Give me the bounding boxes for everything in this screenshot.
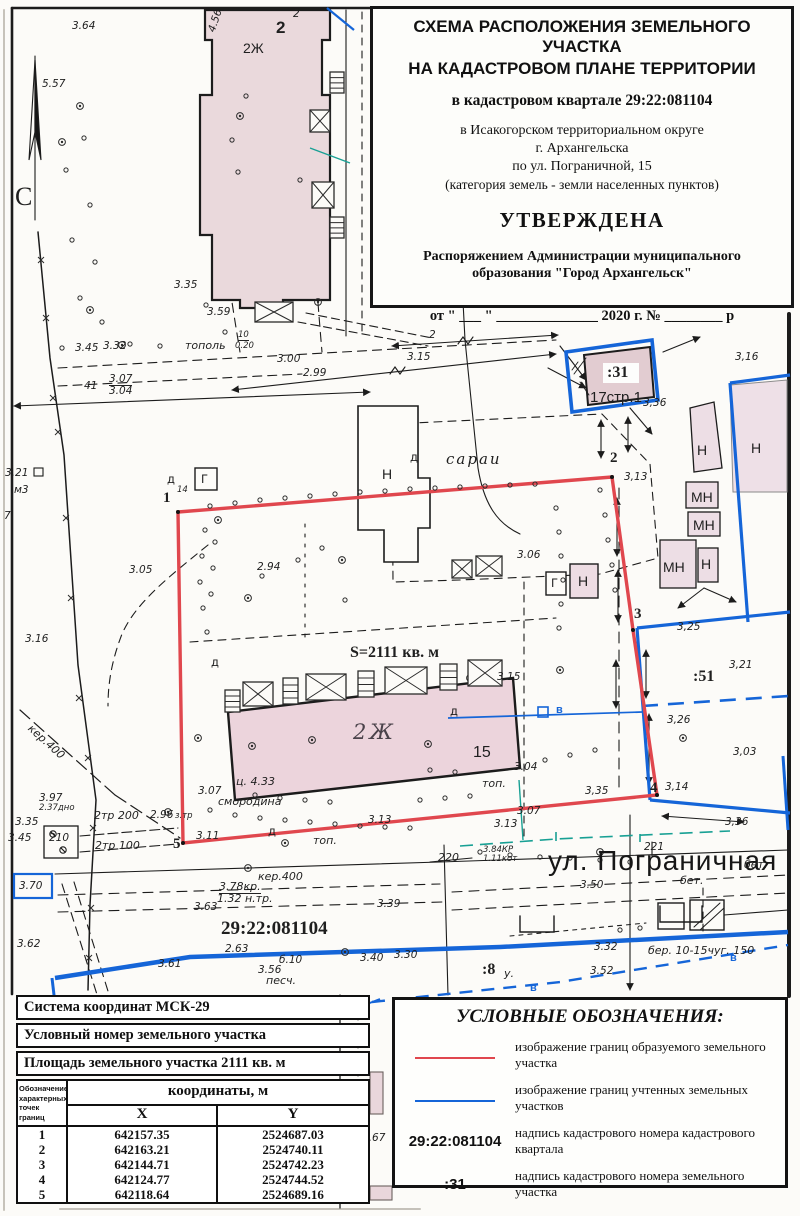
map-label: 1.11кот xyxy=(483,854,517,864)
map-label: д xyxy=(167,472,175,486)
map-label: 3.40 xyxy=(360,952,383,964)
blue-line-symbol xyxy=(415,1100,495,1102)
table-row: 5 xyxy=(18,1187,68,1202)
map-label: 3.52 xyxy=(590,965,613,977)
table-row: 2 xyxy=(18,1142,68,1157)
map-label: :31 xyxy=(607,364,628,382)
map-label: 3,13 xyxy=(624,471,647,483)
parcel-info-table: Система координат МСК-29 Условный номер … xyxy=(16,995,370,1204)
map-label: 220 xyxy=(438,851,459,864)
parcel-area: Площадь земельного участка 2111 кв. м xyxy=(16,1051,370,1076)
map-label: 3,16 xyxy=(735,351,758,363)
map-label: 3.32 xyxy=(103,340,126,352)
map-label: 3,35 xyxy=(585,785,608,797)
map-label: 3,03 xyxy=(733,746,756,758)
map-label: 3.11 xyxy=(196,830,219,842)
table-row: 3 xyxy=(18,1157,68,1172)
map-label: 29:22:081104 xyxy=(221,918,328,940)
map-label: 2 xyxy=(429,329,436,341)
map-label: 3.06 xyxy=(517,549,540,561)
map-label: МН xyxy=(693,517,715,533)
map-label: 10 xyxy=(238,330,249,341)
map-label: 2Ж xyxy=(353,720,396,744)
map-label: б.10 xyxy=(279,954,302,966)
map-label: 2 xyxy=(610,450,618,467)
map-label: топ. xyxy=(313,834,337,847)
map-label: топ. xyxy=(482,777,506,790)
map-label: 5.57 xyxy=(42,78,65,90)
map-label: 3.15 xyxy=(407,351,430,363)
map-label: 3.39 xyxy=(377,898,400,910)
approved-stamp: УТВЕРЖДЕНА xyxy=(373,208,791,233)
scheme-title-line2: НА КАДАСТРОВОМ ПЛАНЕ ТЕРРИТОРИИ xyxy=(373,59,791,79)
map-label: :51 xyxy=(693,668,714,686)
map-label: Г xyxy=(201,472,208,486)
map-label: 3.64 xyxy=(72,20,95,32)
address: по ул. Пограничной, 15 xyxy=(373,159,791,175)
map-label: 3 xyxy=(634,606,642,623)
quarter-number-symbol: 29:22:081104 xyxy=(399,1133,511,1150)
map-label: 1 xyxy=(163,490,171,507)
map-label: 3.04 xyxy=(109,385,132,397)
table-row: 4 xyxy=(18,1172,68,1187)
map-label: 2.96 xyxy=(150,809,173,821)
legend-item-new-boundary: изображение границ образуемого земельног… xyxy=(399,1039,777,1071)
map-label: кер.400 xyxy=(258,870,303,883)
city: г. Архангельска xyxy=(373,141,791,157)
table-row: 1 xyxy=(18,1127,68,1142)
map-label: 41 xyxy=(84,380,97,392)
map-label: бет. xyxy=(680,874,703,887)
map-label: песч. xyxy=(266,974,296,987)
map-label: 2.99 xyxy=(303,367,326,379)
coordinates-table: Обозначение характерных точек границ коо… xyxy=(16,1079,370,1204)
map-label: 5 xyxy=(173,836,181,853)
legend-item-parcel-number: :31 надпись кадастрового номера земельно… xyxy=(399,1168,777,1200)
land-category: (категория земель - земли населенных пун… xyxy=(373,177,791,193)
map-label: 3.61 xyxy=(158,958,181,970)
points-header: Обозначение характерных точек границ xyxy=(18,1081,68,1127)
map-label: 3.63 xyxy=(194,901,217,913)
map-label: 221 xyxy=(644,841,664,853)
map-label: 2.63 xyxy=(225,943,248,955)
map-label: 3.13 xyxy=(368,814,391,826)
map-label: 3.04 xyxy=(514,761,537,773)
map-label: д xyxy=(211,655,219,669)
map-label: 3.16 xyxy=(25,633,48,645)
map-label: 3.59 xyxy=(207,306,230,318)
map-label: 2тр 200 xyxy=(94,809,139,822)
map-label: 0.20 xyxy=(235,341,254,351)
map-label: 3,26 xyxy=(667,714,690,726)
map-label: 3.13 xyxy=(494,818,517,830)
map-label: в xyxy=(530,982,537,994)
map-label: м3 xyxy=(14,484,29,496)
coord-system: Система координат МСК-29 xyxy=(16,995,370,1020)
map-label: 3.35 xyxy=(15,816,38,828)
map-label: ц. 4.33 xyxy=(236,775,275,788)
map-label: д xyxy=(450,704,458,718)
map-label: смородина xyxy=(218,795,281,808)
legend-item-quarter-number: 29:22:081104 надпись кадастрового номера… xyxy=(399,1125,777,1157)
map-label: бер. 10-15чуг. 150 xyxy=(648,944,754,957)
map-label: 3.70 xyxy=(19,880,42,892)
map-label: 3,36 xyxy=(643,397,666,409)
map-label: д xyxy=(268,824,276,838)
conditional-number: Условный номер земельного участка xyxy=(16,1023,370,1048)
map-label: 210 xyxy=(49,832,69,844)
map-label: 3,25 xyxy=(677,621,700,633)
map-label: Н xyxy=(382,466,392,482)
col-x: X xyxy=(68,1106,218,1127)
cadastral-scheme-page: 3.645.57С222Ж4.563.353.593.453.32тополь1… xyxy=(0,0,800,1216)
map-label: 3.32 xyxy=(594,941,617,953)
legend-item-registered-boundary: изображение границ учтенных земельных уч… xyxy=(399,1082,777,1114)
map-label: Н xyxy=(578,573,588,589)
map-label: 3.50 xyxy=(580,879,603,891)
map-label: 2тр 100 xyxy=(95,839,140,852)
order-line1: Распоряжением Администрации муниципально… xyxy=(373,249,791,265)
district: в Исакогорском территориальном округе xyxy=(373,123,791,139)
building-2 xyxy=(200,10,330,308)
map-label: 3.35 xyxy=(174,279,197,291)
map-label: 7 xyxy=(4,510,11,522)
map-label: 3.21 xyxy=(5,467,28,479)
map-label: МН xyxy=(691,489,713,505)
map-label: 3.62 xyxy=(17,938,40,950)
map-label: МН xyxy=(663,559,685,575)
map-label: 2 xyxy=(293,8,300,20)
map-label: S=2111 кв. м xyxy=(350,644,439,662)
map-label: 2.94 xyxy=(257,561,280,573)
legend-box: УСЛОВНЫЕ ОБОЗНАЧЕНИЯ: изображение границ… xyxy=(392,997,788,1188)
map-label: 3,36 xyxy=(725,816,748,828)
date-line: от " ___ " ______________ 2020 г. № ____… xyxy=(373,308,791,325)
map-label: в xyxy=(556,704,563,716)
map-label: 3.15 xyxy=(497,671,520,683)
scheme-title-line1: СХЕМА РАСПОЛОЖЕНИЯ ЗЕМЕЛЬНОГО УЧАСТКА xyxy=(373,17,791,57)
col-y: Y xyxy=(218,1106,368,1127)
parcel-number-symbol: :31 xyxy=(399,1176,511,1193)
legend-title: УСЛОВНЫЕ ОБОЗНАЧЕНИЯ: xyxy=(395,1006,785,1028)
map-label: :8 xyxy=(482,961,495,979)
map-label: Г xyxy=(551,576,558,590)
map-label: тополь xyxy=(185,339,226,352)
map-label: д xyxy=(410,450,418,464)
map-label: 3.30 xyxy=(394,949,417,961)
map-label: 3.45 xyxy=(75,342,98,354)
map-label: сараи xyxy=(446,450,502,468)
map-label: 2.37дно xyxy=(39,803,75,813)
coords-header: координаты, м xyxy=(68,1081,368,1106)
map-label: Н xyxy=(751,440,761,456)
map-label: 4 xyxy=(650,780,658,797)
cadastral-quarter: в кадастровом квартале 29:22:081104 xyxy=(373,92,791,110)
map-label: Н xyxy=(697,442,707,458)
parcel-51-boundary xyxy=(637,612,790,628)
title-block: СХЕМА РАСПОЛОЖЕНИЯ ЗЕМЕЛЬНОГО УЧАСТКА НА… xyxy=(370,6,794,308)
map-label: 2Ж xyxy=(243,40,264,56)
map-label: в xyxy=(730,952,737,964)
map-label: з.тр xyxy=(175,811,193,821)
map-label: 2 xyxy=(276,18,285,38)
map-label: 14 xyxy=(177,485,188,495)
map-label: 3,21 xyxy=(729,659,752,671)
map-label: Н xyxy=(701,556,711,572)
map-label: 17стр.1 xyxy=(590,389,642,406)
map-label: 3.07 xyxy=(517,805,540,817)
map-label: 15 xyxy=(473,744,491,762)
map-label: С xyxy=(15,182,32,212)
map-label: у. xyxy=(504,967,514,980)
map-label: 3.05 xyxy=(129,564,152,576)
red-line-symbol xyxy=(415,1057,495,1059)
map-label: 3.00 xyxy=(277,353,300,365)
map-label: 1.32 н.тр. xyxy=(217,892,273,905)
map-label: бет. xyxy=(744,858,767,871)
order-line2: образования "Город Архангельск" xyxy=(373,266,791,282)
map-label: 3.45 xyxy=(8,832,31,844)
map-label: 3,14 xyxy=(665,781,688,793)
